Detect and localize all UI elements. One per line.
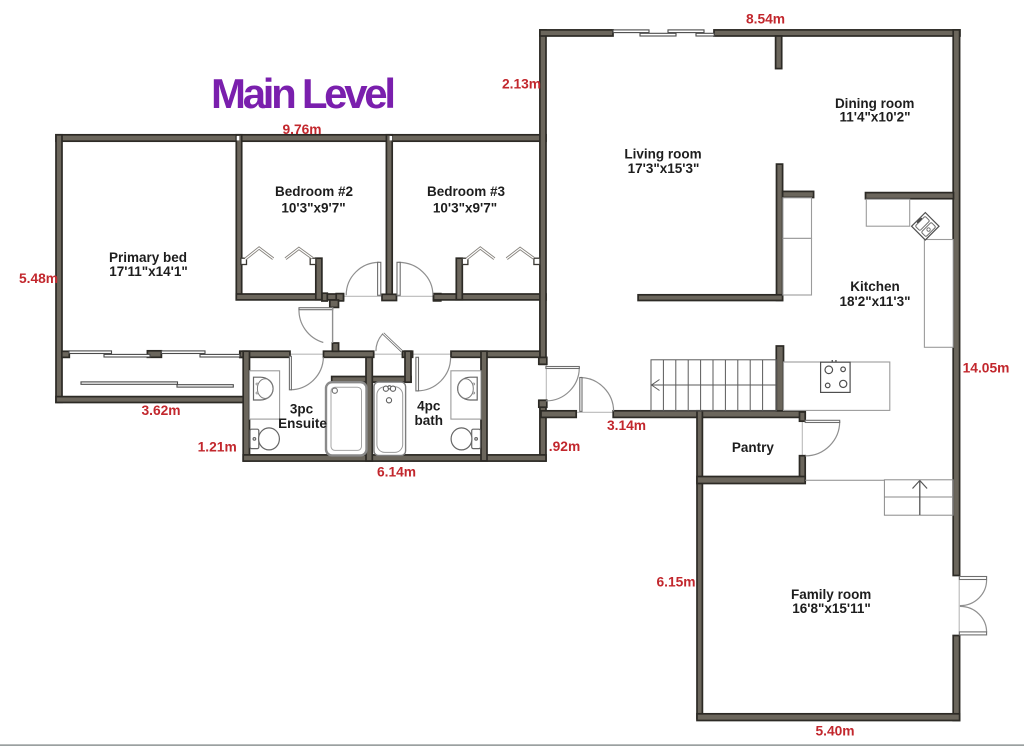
svg-text:Pantry: Pantry	[732, 440, 775, 455]
svg-text:16'8"x15'11": 16'8"x15'11"	[792, 601, 871, 616]
svg-text:Main Level: Main Level	[211, 70, 396, 117]
svg-text:bath: bath	[415, 413, 444, 428]
svg-text:3pc: 3pc	[290, 402, 314, 417]
svg-text:14.05m: 14.05m	[963, 361, 1010, 376]
svg-text:3.62m: 3.62m	[141, 403, 180, 418]
svg-text:3.14m: 3.14m	[607, 418, 646, 433]
svg-text:10'3"x9'7": 10'3"x9'7"	[433, 201, 497, 216]
svg-text:17'11"x14'1": 17'11"x14'1"	[109, 264, 188, 279]
svg-text:Family room: Family room	[791, 587, 871, 602]
svg-text:5.48m: 5.48m	[19, 271, 58, 286]
svg-text:Ensuite: Ensuite	[278, 416, 327, 431]
svg-text:4pc: 4pc	[417, 398, 441, 413]
svg-text:Primary bed: Primary bed	[109, 250, 187, 265]
svg-text:17'3"x15'3": 17'3"x15'3"	[628, 161, 700, 176]
svg-text:6.14m: 6.14m	[377, 465, 416, 480]
svg-text:2.13m: 2.13m	[502, 77, 541, 92]
svg-text:Bedroom #2: Bedroom #2	[275, 184, 353, 199]
svg-text:6.15m: 6.15m	[656, 575, 695, 590]
svg-text:5.40m: 5.40m	[815, 723, 854, 738]
svg-text:11'4"x10'2": 11'4"x10'2"	[839, 110, 910, 125]
svg-text:Kitchen: Kitchen	[850, 279, 900, 294]
svg-text:.92m: .92m	[549, 439, 580, 454]
svg-text:18'2"x11'3": 18'2"x11'3"	[839, 294, 910, 309]
svg-text:10'3"x9'7": 10'3"x9'7"	[281, 201, 345, 216]
svg-text:8.54m: 8.54m	[746, 12, 785, 27]
svg-text:Living room: Living room	[624, 146, 701, 161]
svg-text:9.76m: 9.76m	[282, 122, 321, 137]
svg-text:1.21m: 1.21m	[198, 440, 237, 455]
svg-text:Bedroom #3: Bedroom #3	[427, 184, 506, 199]
